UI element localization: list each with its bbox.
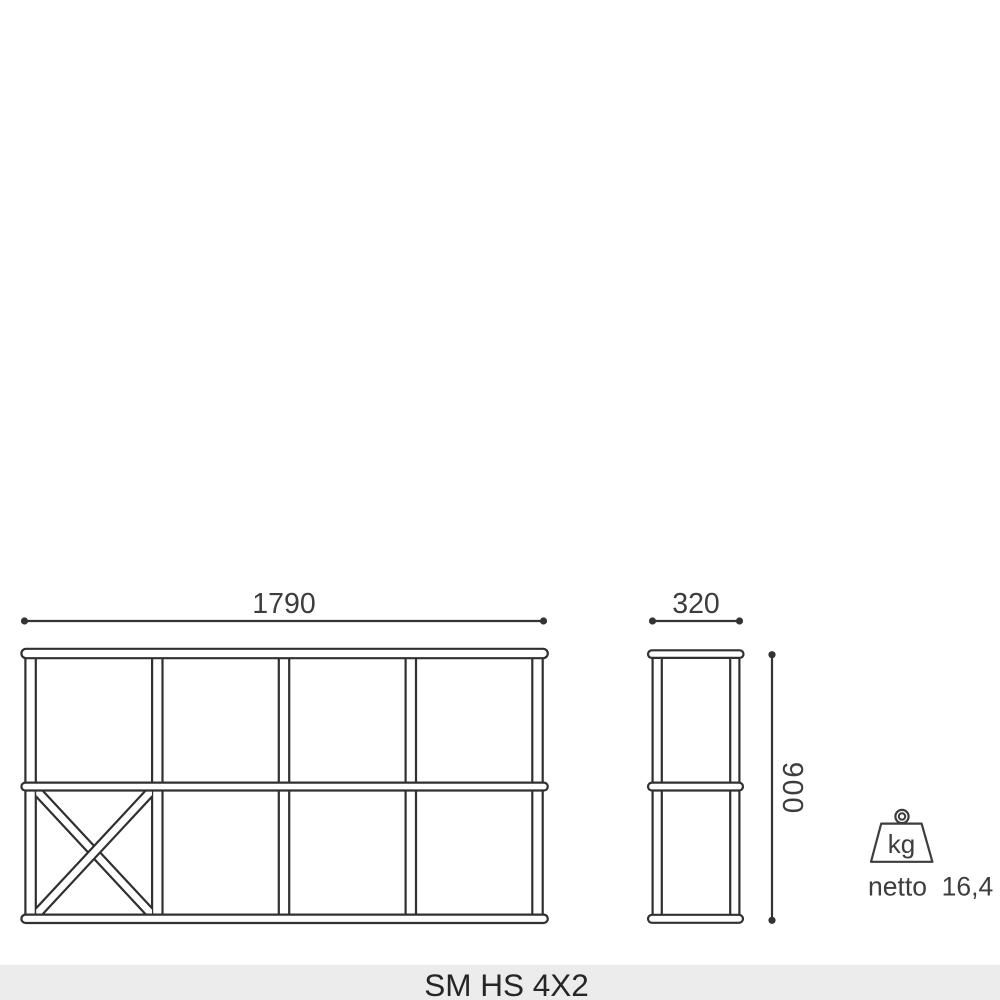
svg-text:netto 16,4: netto 16,4 [868,872,993,902]
svg-text:1790: 1790 [252,588,315,620]
svg-text:SM HS 4X2: SM HS 4X2 [424,967,589,1000]
svg-text:320: 320 [672,588,720,620]
svg-text:900: 900 [776,762,808,816]
svg-text:kg: kg [888,829,915,859]
